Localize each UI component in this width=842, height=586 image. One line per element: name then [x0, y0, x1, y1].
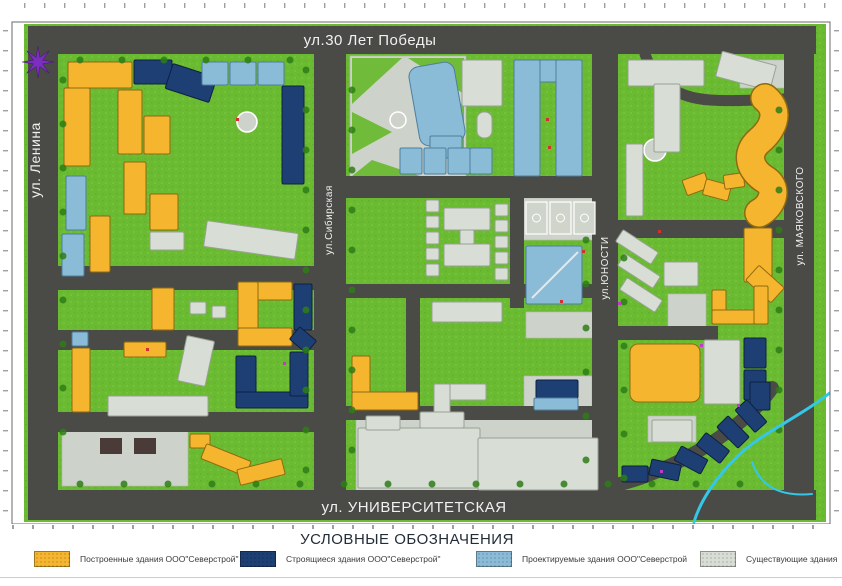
tree: [60, 341, 67, 348]
ruler-tick: [804, 3, 805, 8]
ruler-tick: [834, 210, 839, 211]
tree: [776, 227, 783, 234]
building-existing: [366, 416, 400, 430]
road: [28, 26, 58, 520]
ruler-tick: [444, 3, 445, 8]
playground-mark: [548, 146, 551, 149]
tree: [349, 327, 356, 334]
tree: [583, 369, 590, 376]
building-existing: [628, 60, 704, 86]
tree: [429, 481, 436, 488]
building-existing: [426, 264, 439, 276]
ruler-tick: [834, 330, 839, 331]
building-built: [238, 328, 292, 346]
ruler-tick: [834, 430, 839, 431]
ruler-tick: [834, 90, 839, 91]
ruler-tick: [244, 3, 245, 8]
ruler-tick: [3, 190, 8, 191]
street-label: ул. МАЯКОВСКОГО: [795, 166, 806, 265]
ruler-ticks-bottom: [12, 525, 830, 529]
ruler-tick: [3, 110, 8, 111]
legend-item-label: Существующие здания: [746, 554, 837, 564]
ruler-tick: [44, 3, 45, 8]
playground-mark: [236, 118, 239, 121]
road: [346, 176, 592, 198]
ruler-tick: [3, 350, 8, 351]
tree: [303, 267, 310, 274]
building-existing: [626, 144, 643, 216]
tree: [77, 481, 84, 488]
courtyard-circle: [237, 112, 257, 132]
tree: [621, 475, 628, 482]
tree: [349, 87, 356, 94]
tree: [776, 307, 783, 314]
tree: [287, 57, 294, 64]
ruler-tick: [834, 110, 839, 111]
legend-item-built: Построенные здания ООО"Северстрой": [34, 551, 239, 567]
ruler-tick: [84, 3, 85, 8]
ruler-tick: [704, 3, 705, 8]
tree: [60, 385, 67, 392]
ruler-tick: [3, 210, 8, 211]
city-map: ул.30 Лет Победыул. Ленинаул.Сибирскаяул…: [0, 0, 842, 527]
tree: [621, 431, 628, 438]
tree: [583, 281, 590, 288]
tree: [60, 429, 67, 436]
street-label: ул. Ленина: [27, 122, 43, 198]
building-built: [118, 90, 142, 154]
building-built: [68, 62, 132, 88]
sport-court: [550, 202, 571, 234]
ruler-tick: [264, 3, 265, 8]
sport-court: [526, 202, 547, 234]
building-under-construction: [294, 284, 312, 330]
ruler-tick: [834, 170, 839, 171]
ruler-tick: [3, 410, 8, 411]
ruler-tick: [834, 130, 839, 131]
legend-item-projected: Проектируемые здания ООО"Северстрой: [476, 551, 687, 567]
building-existing: [426, 200, 439, 212]
tree: [776, 347, 783, 354]
tree: [60, 297, 67, 304]
tree: [349, 127, 356, 134]
ruler-tick: [3, 310, 8, 311]
legend: УСЛОВНЫЕ ОБОЗНАЧЕНИЯ Построенные здания …: [0, 524, 842, 586]
ruler-tick: [834, 510, 839, 511]
legend-item-label: Строящиеся здания ООО"Северстрой": [286, 554, 441, 564]
building-projected: [448, 148, 470, 174]
ruler-tick: [504, 3, 505, 8]
tree: [349, 207, 356, 214]
tree: [776, 267, 783, 274]
building-existing: [190, 302, 206, 314]
legend-title: УСЛОВНЫЕ ОБОЗНАЧЕНИЯ: [0, 531, 814, 548]
ruler-tick: [3, 50, 8, 51]
tree: [119, 57, 126, 64]
ruler-tick: [724, 3, 725, 8]
ruler-tick: [644, 3, 645, 8]
building-existing: [478, 438, 598, 490]
tree: [583, 413, 590, 420]
tree: [303, 387, 310, 394]
ruler-tick: [834, 290, 839, 291]
ruler-tick: [3, 330, 8, 331]
road: [314, 26, 346, 520]
building-existing: [426, 216, 439, 228]
ruler-tick: [584, 3, 585, 8]
tree: [303, 187, 310, 194]
ruler-tick: [184, 3, 185, 8]
tree: [60, 121, 67, 128]
tree: [60, 253, 67, 260]
building-existing: [462, 60, 502, 106]
ruler-tick: [624, 3, 625, 8]
building-built: [144, 116, 170, 154]
tree: [583, 237, 590, 244]
building-existing: [704, 340, 740, 404]
ruler-tick: [3, 250, 8, 251]
building-built: [124, 342, 166, 357]
parking-structure: [100, 438, 122, 454]
ruler-tick: [484, 3, 485, 8]
street-label: ул.ЮНОСТИ: [600, 236, 611, 299]
plaza: [62, 430, 188, 486]
building-existing: [664, 262, 698, 286]
ruler-tick: [524, 3, 525, 8]
ruler-tick: [834, 30, 839, 31]
ruler-tick: [204, 3, 205, 8]
tree: [303, 147, 310, 154]
tree: [303, 67, 310, 74]
tree: [517, 481, 524, 488]
tree: [121, 481, 128, 488]
ruler-tick: [3, 150, 8, 151]
tree: [693, 481, 700, 488]
tree: [60, 165, 67, 172]
ruler-tick: [124, 3, 125, 8]
legend-item-label: Построенные здания ООО"Северстрой": [80, 554, 239, 564]
tree: [776, 147, 783, 154]
ruler-tick: [144, 3, 145, 8]
tree: [385, 481, 392, 488]
tree: [349, 167, 356, 174]
tree: [303, 347, 310, 354]
building-under-construction: [744, 338, 766, 368]
utility-mark: [737, 404, 740, 407]
building-projected: [556, 60, 582, 176]
ruler-tick: [834, 490, 839, 491]
tree: [621, 387, 628, 394]
ruler-tick: [3, 30, 8, 31]
building-projected: [514, 60, 540, 176]
parking-structure: [134, 438, 156, 454]
ruler-tick: [544, 3, 545, 8]
building-built: [90, 216, 110, 272]
building-existing: [150, 232, 184, 250]
ruler-tick: [604, 3, 605, 8]
ruler-tick: [834, 350, 839, 351]
ruler-tick: [834, 230, 839, 231]
building-built: [124, 162, 146, 214]
playground-mark: [546, 118, 549, 121]
building-existing: [432, 302, 502, 322]
ruler-tick: [834, 370, 839, 371]
tree: [349, 447, 356, 454]
tree: [561, 481, 568, 488]
playground-mark: [146, 348, 149, 351]
tree: [583, 457, 590, 464]
building-existing: [108, 396, 208, 416]
road: [510, 176, 524, 308]
playground-mark: [560, 300, 563, 303]
ruler-tick: [3, 370, 8, 371]
tree: [583, 325, 590, 332]
tree: [776, 107, 783, 114]
building-under-construction: [282, 86, 304, 184]
tree: [737, 481, 744, 488]
ruler-tick: [424, 3, 425, 8]
tree: [297, 481, 304, 488]
ruler-tick: [3, 490, 8, 491]
building-built: [152, 288, 174, 330]
tree: [60, 77, 67, 84]
utility-mark: [660, 470, 663, 473]
building-existing: [426, 232, 439, 244]
ruler-tick: [834, 410, 839, 411]
building-projected: [534, 398, 578, 410]
ruler-tick: [344, 3, 345, 8]
ruler-tick: [404, 3, 405, 8]
building-projected: [66, 176, 86, 230]
building-projected: [470, 148, 492, 174]
tree: [349, 287, 356, 294]
utility-mark: [700, 344, 703, 347]
tree: [77, 57, 84, 64]
ruler-tick: [3, 450, 8, 451]
building-existing: [444, 244, 490, 266]
ruler-tick: [3, 390, 8, 391]
ruler-tick: [384, 3, 385, 8]
building-built: [72, 348, 90, 412]
building-under-construction: [536, 380, 578, 398]
ruler-tick: [684, 3, 685, 8]
ruler-tick: [3, 130, 8, 131]
tree: [303, 227, 310, 234]
ruler-tick: [64, 3, 65, 8]
building-built: [64, 88, 90, 166]
ruler-tick: [3, 230, 8, 231]
street-label: ул.30 Лет Победы: [304, 32, 437, 49]
building-existing: [444, 208, 490, 230]
building-existing: [212, 306, 226, 318]
building-existing: [426, 248, 439, 260]
tree: [341, 481, 348, 488]
tree: [776, 187, 783, 194]
ruler-tick: [3, 430, 8, 431]
ruler-tick: [324, 3, 325, 8]
tree: [253, 481, 260, 488]
ruler-tick: [834, 310, 839, 311]
tree: [303, 307, 310, 314]
building-existing: [495, 220, 508, 232]
road: [618, 326, 718, 340]
tree: [161, 57, 168, 64]
building-existing: [495, 268, 508, 280]
ruler-tick: [834, 390, 839, 391]
building-projected: [230, 62, 256, 85]
compass-star-icon: [22, 46, 54, 78]
ruler-tick: [834, 150, 839, 151]
ruler-tick: [834, 50, 839, 51]
building-projected: [400, 148, 422, 174]
tree: [303, 107, 310, 114]
ruler-tick: [664, 3, 665, 8]
tree: [621, 299, 628, 306]
tree: [776, 387, 783, 394]
tree: [245, 57, 252, 64]
ruler-tick: [744, 3, 745, 8]
building-projected: [202, 62, 228, 85]
existing-swatch-icon: [700, 551, 736, 567]
ruler-tick: [834, 190, 839, 191]
building-existing: [420, 412, 464, 428]
ruler-tick: [834, 270, 839, 271]
ruler-tick: [304, 3, 305, 8]
legend-item-existing: Существующие здания: [700, 551, 837, 567]
building-under-construction: [134, 60, 172, 84]
ruler-tick: [284, 3, 285, 8]
legend-item-label: Проектируемые здания ООО"Северстрой: [522, 554, 687, 564]
utility-mark: [283, 362, 286, 365]
building-built: [352, 392, 418, 410]
building-existing: [358, 428, 480, 488]
ruler-tick: [3, 70, 8, 71]
tree: [349, 247, 356, 254]
tree: [621, 255, 628, 262]
building-projected: [424, 148, 446, 174]
playground-mark: [582, 250, 585, 253]
playground-mark: [658, 230, 661, 233]
building-existing: [652, 420, 692, 442]
ruler-tick: [3, 470, 8, 471]
ruler-tick: [824, 3, 825, 8]
street-label: ул.Сибирская: [323, 185, 335, 255]
ruler-tick: [3, 170, 8, 171]
ruler-tick: [834, 70, 839, 71]
building-existing: [460, 230, 474, 244]
ruler-tick: [3, 270, 8, 271]
building-projected: [72, 332, 88, 346]
site-plan-page: ул.30 Лет Победыул. Ленинаул.Сибирскаяул…: [0, 0, 842, 586]
ruler-tick: [104, 3, 105, 8]
built-swatch-icon: [34, 551, 70, 567]
building-existing: [495, 236, 508, 248]
tree: [349, 407, 356, 414]
projected-swatch-icon: [476, 551, 512, 567]
building-built: [630, 344, 700, 402]
tree: [473, 481, 480, 488]
tree: [303, 427, 310, 434]
ruler-tick: [834, 470, 839, 471]
road: [406, 284, 420, 410]
tree: [209, 481, 216, 488]
ruler-tick: [834, 450, 839, 451]
tree: [621, 343, 628, 350]
ruler-tick: [834, 250, 839, 251]
building-existing: [477, 112, 492, 138]
legend-divider: [0, 577, 842, 578]
legend-item-under-construction: Строящиеся здания ООО"Северстрой": [240, 551, 441, 567]
building-existing: [495, 204, 508, 216]
ruler-tick: [3, 290, 8, 291]
ruler-tick: [764, 3, 765, 8]
ruler-tick: [564, 3, 565, 8]
ruler-tick: [364, 3, 365, 8]
building-existing: [495, 252, 508, 264]
tree: [60, 209, 67, 216]
building-projected: [258, 62, 284, 85]
building-built: [754, 286, 768, 324]
ruler-tick: [3, 510, 8, 511]
under-construction-swatch-icon: [240, 551, 276, 567]
sport-court: [574, 202, 595, 234]
plaza: [668, 294, 706, 328]
utility-mark: [618, 302, 621, 305]
ruler-tick: [164, 3, 165, 8]
tree: [165, 481, 172, 488]
ruler-tick: [464, 3, 465, 8]
tree: [303, 467, 310, 474]
street-label: ул. УНИВЕРСИТЕТСКАЯ: [321, 499, 506, 516]
building-built: [150, 194, 178, 230]
ruler-tick: [24, 3, 25, 8]
tree: [605, 481, 612, 488]
ruler-tick: [224, 3, 225, 8]
tree: [349, 367, 356, 374]
tree: [649, 481, 656, 488]
ruler-tick: [784, 3, 785, 8]
ruler-tick: [3, 90, 8, 91]
courtyard-circle: [390, 112, 406, 128]
building-existing: [654, 84, 680, 152]
tree: [203, 57, 210, 64]
